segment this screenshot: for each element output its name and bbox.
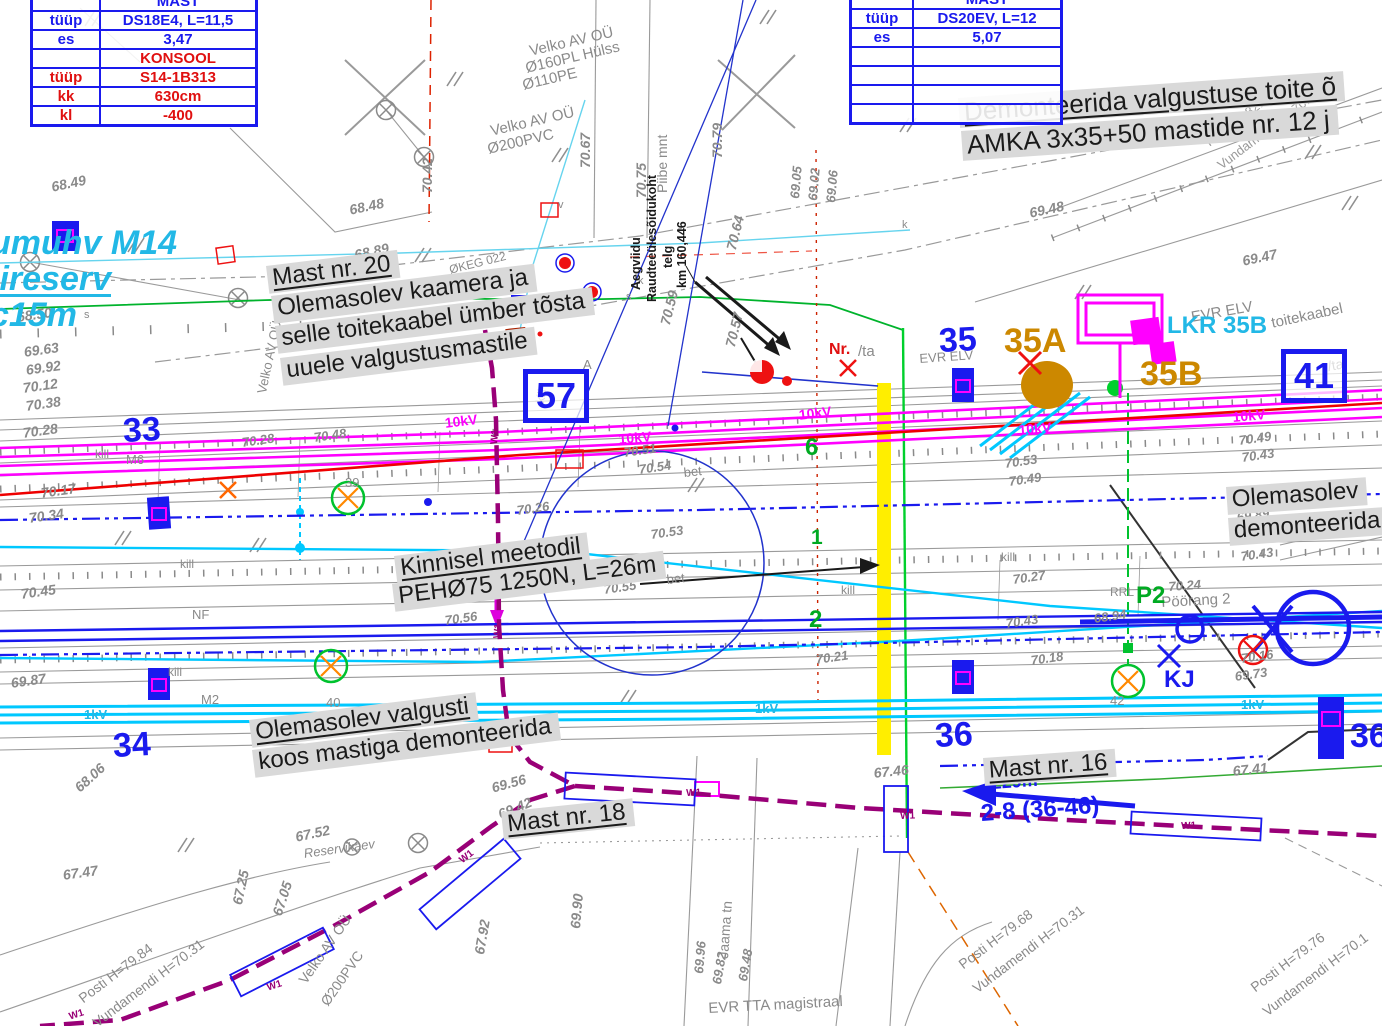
spec-value: 5,07 — [913, 28, 1062, 47]
spec-key: tüüp — [851, 9, 914, 28]
spec-value: -400 — [100, 106, 257, 126]
joint-dot-icons — [556, 254, 601, 301]
table-row: es 3,47 — [32, 30, 257, 49]
spec-key — [32, 49, 101, 68]
spec-value: KONSOOL — [100, 49, 257, 68]
mast-35a-icon — [1021, 361, 1073, 409]
site-plan-page: { "colors": { "cad_blue": "#1a1aee", "ca… — [0, 0, 1382, 1026]
table-row — [851, 47, 1062, 66]
spec-value: 3,47 — [100, 30, 257, 49]
spec-value: 630cm — [100, 87, 257, 106]
mast-number-box: 57 — [523, 369, 589, 423]
spec-key — [851, 0, 914, 9]
table-row: es 5,07 — [851, 28, 1062, 47]
spec-key: kk — [32, 87, 101, 106]
mast-number-box: 41 — [1281, 349, 1347, 403]
mast-spec-table-right: MAST tüüp DS20EV, L=12 es 5,07 — [849, 0, 1063, 125]
spec-key: tüüp — [32, 68, 101, 87]
spec-key — [851, 85, 914, 104]
spec-key — [851, 104, 914, 124]
spec-key — [32, 0, 101, 11]
table-row — [851, 104, 1062, 124]
table-row: MAST — [32, 0, 257, 11]
railway-sleeper-hatch — [0, 112, 1382, 660]
spec-key — [851, 66, 914, 85]
spec-value — [913, 66, 1062, 85]
spec-value: DS20EV, L=12 — [913, 9, 1062, 28]
spec-key: es — [851, 28, 914, 47]
gray-base-lines — [0, 0, 1382, 1026]
mast-spec-table-left: MAST tüüp DS18E4, L=11,5 es 3,47 KONSOOL… — [30, 0, 258, 127]
spec-value — [913, 104, 1062, 124]
table-row: kl -400 — [32, 106, 257, 126]
table-row: MAST — [851, 0, 1062, 9]
cyan-1kv-lines — [0, 100, 1382, 723]
table-row — [851, 85, 1062, 104]
spec-value — [913, 85, 1062, 104]
spec-value: MAST — [913, 0, 1062, 9]
spec-key: tüüp — [32, 11, 101, 30]
table-row: KONSOOL — [32, 49, 257, 68]
spec-key — [851, 47, 914, 66]
table-row — [851, 66, 1062, 85]
table-row: kk 630cm — [32, 87, 257, 106]
spec-value: DS18E4, L=11,5 — [100, 11, 257, 30]
table-row: tüüp S14-1B313 — [32, 68, 257, 87]
table-row: tüüp DS18E4, L=11,5 — [32, 11, 257, 30]
yellow-marker-bar — [877, 383, 891, 755]
spec-value: MAST — [100, 0, 257, 11]
kapp-icon — [505, 327, 526, 343]
spec-key: es — [32, 30, 101, 49]
base-map-svg — [0, 0, 1382, 1026]
spec-key: kl — [32, 106, 101, 126]
table-row: tüüp DS20EV, L=12 — [851, 9, 1062, 28]
spec-value: S14-1B313 — [100, 68, 257, 87]
spec-value — [913, 47, 1062, 66]
